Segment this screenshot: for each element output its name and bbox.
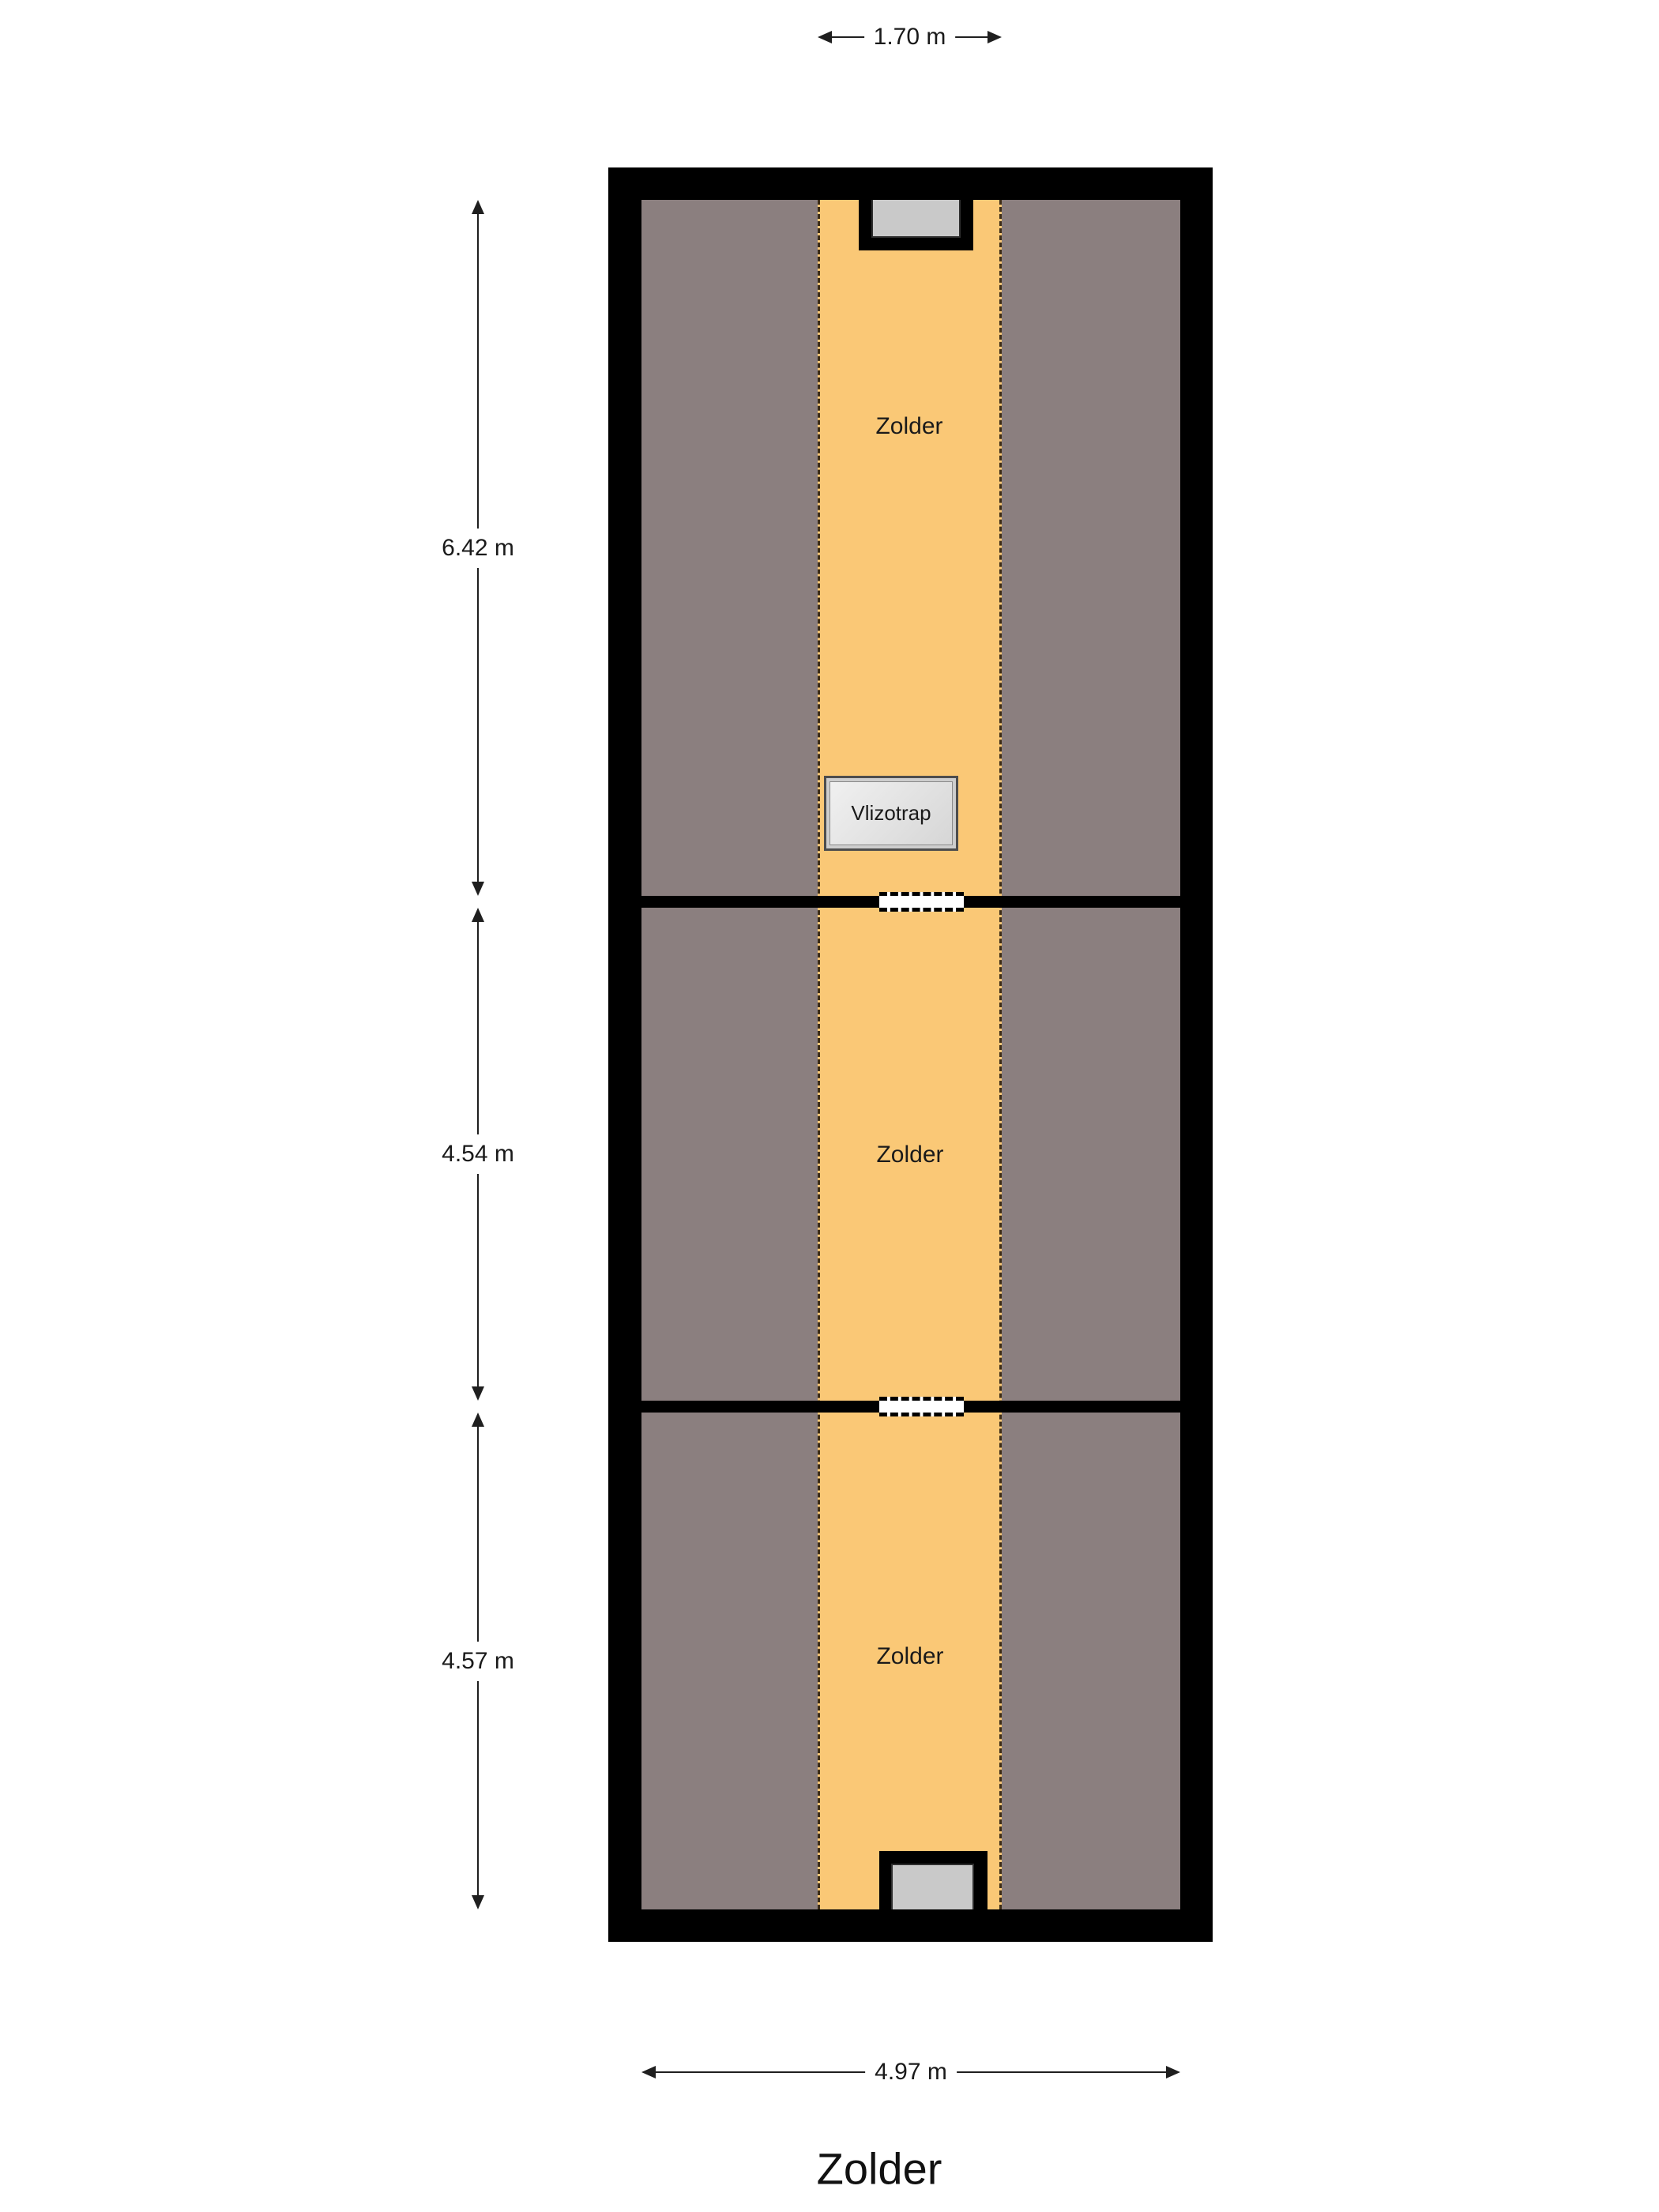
dimension-section-1-height: 6.42 m	[466, 200, 490, 896]
arrow-up-icon	[472, 200, 484, 214]
arrow-down-icon	[472, 1386, 484, 1401]
loft-ladder-label: Vlizotrap	[829, 781, 953, 845]
dimension-bottom-width-label: 4.97 m	[865, 2059, 957, 2086]
arrow-down-icon	[472, 882, 484, 896]
wall-opening-2	[879, 1397, 964, 1416]
dimension-bottom-width: 4.97 m	[641, 2060, 1180, 2084]
dimension-section-2-height: 4.54 m	[466, 908, 490, 1401]
arrow-left-icon	[818, 31, 832, 43]
dimension-section-3-height: 4.57 m	[466, 1413, 490, 1909]
dimension-section-2-height-label: 4.54 m	[437, 1134, 519, 1174]
arrow-up-icon	[472, 1413, 484, 1427]
arrow-right-icon	[987, 31, 1002, 43]
wall-opening-1	[879, 892, 964, 912]
arrow-right-icon	[1166, 2066, 1180, 2078]
room-label-zolder-2: Zolder	[876, 1142, 943, 1168]
dimension-section-1-height-label: 6.42 m	[437, 529, 519, 568]
arrow-left-icon	[641, 2066, 656, 2078]
bottom-window	[891, 1864, 974, 1909]
loft-ladder-hatch: Vlizotrap	[824, 776, 958, 851]
room-label-zolder-3: Zolder	[876, 1643, 943, 1670]
top-window	[871, 200, 961, 238]
room-label-zolder-1: Zolder	[875, 413, 942, 440]
page-title: Zolder	[817, 2143, 942, 2195]
dimension-section-3-height-label: 4.57 m	[437, 1642, 519, 1681]
arrow-down-icon	[472, 1895, 484, 1909]
arrow-up-icon	[472, 908, 484, 922]
dimension-top-width: 1.70 m	[818, 25, 1002, 49]
dimension-top-width-label: 1.70 m	[864, 24, 956, 51]
